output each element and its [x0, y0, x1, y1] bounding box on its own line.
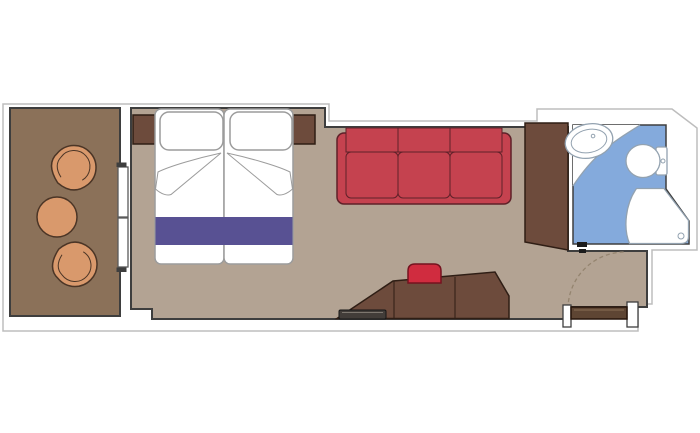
- sofa-back-cushion-1: [346, 128, 398, 152]
- nightstand-right: [293, 115, 315, 144]
- pillow-right: [230, 112, 292, 150]
- balcony-round-table: [37, 197, 77, 237]
- bathroom-door-hinge-mark-1: [577, 242, 587, 247]
- wardrobe: [525, 123, 568, 250]
- door-leaf: [571, 307, 627, 319]
- door-jamb-left: [563, 305, 571, 327]
- door-jamb-right: [627, 302, 638, 327]
- nightstand-left: [133, 115, 155, 144]
- balcony: [10, 108, 128, 316]
- sofa: [337, 128, 511, 204]
- stool: [408, 264, 441, 283]
- sofa-seat-cushion-3: [450, 152, 502, 198]
- floor-plan-page: [0, 0, 700, 433]
- door-frame-tick-top: [117, 163, 127, 168]
- bathroom-door-hinge-mark-2: [579, 249, 586, 253]
- toilet-bowl: [626, 145, 660, 178]
- balcony-sliding-door: [117, 163, 129, 273]
- double-bed: [155, 109, 293, 264]
- door-frame-tick-bottom: [117, 268, 127, 273]
- sofa-seat-cushion-2: [398, 152, 450, 198]
- sofa-back-cushion-3: [450, 128, 502, 152]
- sofa-back-cushion-2: [398, 128, 450, 152]
- sofa-seat-cushion-1: [346, 152, 398, 198]
- glass-panel-bottom: [118, 218, 128, 267]
- toilet: [626, 145, 667, 178]
- pillow-left: [160, 112, 223, 150]
- floor-plan: [0, 0, 700, 433]
- glass-panel-top: [118, 167, 128, 217]
- tv: [339, 310, 386, 319]
- bed-runner: [156, 217, 293, 245]
